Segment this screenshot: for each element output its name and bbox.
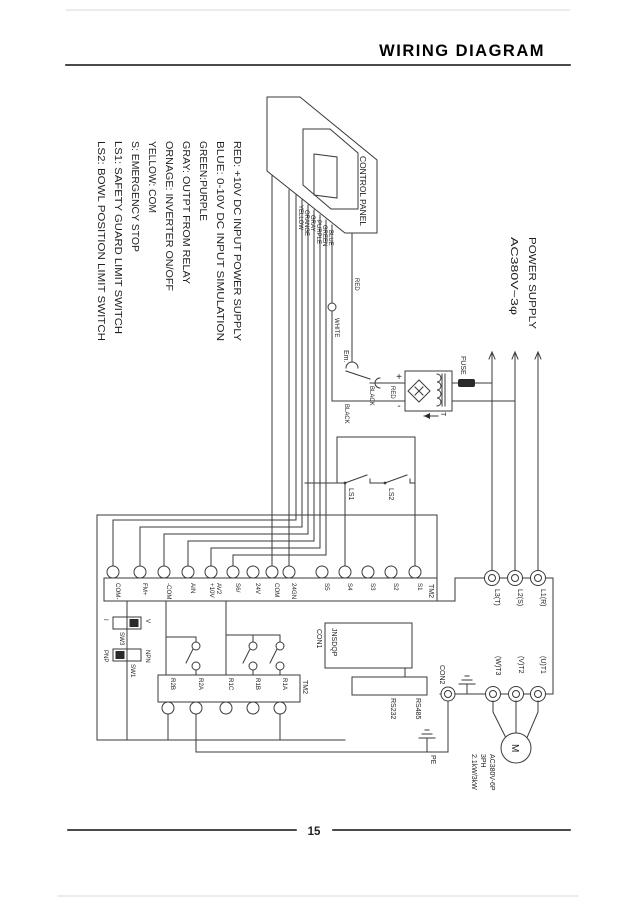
relay-output-wires — [168, 701, 448, 752]
input-terminals: L3(T) L2(S) L1(R) — [485, 571, 547, 607]
relay-contact — [192, 642, 200, 650]
tm2-bottom-name: TM2 — [301, 680, 308, 694]
page-title: WIRING DIAGRAM — [379, 42, 545, 60]
terminal-label: 24V — [254, 583, 261, 595]
em-switch-cap-icon — [346, 362, 358, 368]
terminal-circle — [385, 566, 397, 578]
ls2-label: LS2 — [387, 488, 394, 501]
sw3-slider-icon — [130, 619, 139, 627]
tm2-top-name: TM2 — [427, 584, 434, 598]
bridge-rectifier-icon — [408, 380, 430, 402]
terminal-label: -COM — [165, 583, 172, 600]
sw3-left-label: I — [102, 619, 108, 621]
wire-label-purple: PURPLE — [315, 220, 321, 244]
transformer-arrow-head — [424, 413, 430, 419]
wire-label-white: WHITE — [333, 318, 339, 337]
terminal-circle — [266, 566, 278, 578]
ring-terminal — [486, 687, 501, 702]
relay-contact — [192, 662, 200, 670]
terminal-circle — [227, 566, 239, 578]
transformer-coil-icon — [437, 374, 445, 406]
output-terminals: (W)T3 (V)T2 (U)T1 — [486, 656, 547, 702]
motor-spec: AC380V-6P 3PH 2.1kW/3kW — [470, 754, 495, 791]
terminal-circle — [339, 566, 351, 578]
relay-contact-lines — [166, 601, 280, 675]
ring-terminal — [508, 571, 523, 586]
sw1-label: SW1 — [129, 664, 136, 678]
legend-line-red: RED: +10V DC INPUT POWER SUPPLY — [231, 141, 242, 341]
legend-line-gray: GRAY: OUTPT FROM RELAY — [180, 141, 191, 284]
pe-ground-icon — [419, 730, 435, 752]
legend-line-yellow: YELLOW: COM — [146, 141, 157, 213]
terminal-label: COM- — [114, 583, 121, 600]
output-terminal-label: (U)T1 — [539, 656, 546, 674]
fuse-label: FUSE — [459, 356, 466, 375]
relay-contact — [249, 642, 257, 650]
con1-label: CON1 — [315, 629, 322, 649]
input-terminal-label: L3(T) — [493, 589, 500, 606]
input-terminal-label: L2(S) — [516, 589, 523, 606]
fuse-icon — [458, 379, 475, 387]
terminal-label: S4 — [346, 583, 353, 591]
ring-terminal — [531, 687, 546, 702]
contact-dot — [384, 482, 387, 485]
motor-spec-line: AC380V-6P — [488, 754, 495, 791]
con1-board-label: JNSDQP — [330, 628, 337, 657]
rs-port-box — [352, 677, 427, 695]
rs485-label: RS485 — [414, 698, 421, 720]
terminal-circle — [162, 702, 174, 714]
terminal-circle — [274, 702, 286, 714]
motor-spec-line: 3PH — [479, 754, 486, 768]
minus-sign: - — [397, 401, 400, 412]
tm2-top-circles — [107, 566, 421, 578]
earth-ground-icon — [459, 676, 475, 694]
wire-label-red-b: RED — [389, 386, 395, 399]
terminal-circle — [158, 566, 170, 578]
legend-line-ls1: LS1: SAFETY GUARD LIMIT SWITCH — [112, 141, 123, 334]
power-supply-voltage: AC380V~3φ — [508, 237, 519, 316]
terminal-circle — [409, 566, 421, 578]
ring-terminal — [485, 571, 500, 586]
wire-label-orange: ORANGE — [303, 210, 309, 236]
terminal-circle — [220, 702, 232, 714]
rs232-label: RS232 — [389, 698, 396, 720]
pe-label: PE — [429, 755, 436, 765]
relay-terminal-label: R2B — [169, 678, 176, 690]
tm2-bottom-circles — [162, 702, 286, 714]
motor-spec-line: 2.1kW/3kW — [470, 754, 477, 790]
connector-plug-icon — [328, 303, 336, 311]
tm2-top-labels: COM- FM+ -COM AIN AV2 +10V S6/ 24V COM 2… — [114, 583, 434, 600]
terminal-label: 24GN — [290, 583, 297, 599]
terminal-circle — [190, 702, 202, 714]
terminal-circle — [107, 566, 119, 578]
relay-terminal-label: R2A — [197, 678, 204, 691]
control-panel-label: CONTROL PANEL — [358, 156, 368, 226]
motor-symbol: M — [509, 744, 520, 752]
relay-terminal-label: R1C — [227, 678, 234, 691]
terminal-label: S5 — [323, 583, 330, 591]
supply-phase-lines — [492, 352, 538, 570]
terminal-label: COM — [273, 583, 280, 597]
tm2-top-strip — [104, 578, 437, 601]
terminal-circle — [247, 566, 259, 578]
plus-sign: + — [396, 372, 402, 383]
tm2-bottom-labels: R2B R2A R1C R1B R1A TM2 — [169, 678, 308, 694]
wiring-diagram-page: WIRING DIAGRAM 15 RED: +10V DC INPUT POW… — [0, 0, 638, 903]
terminal-label: S6/ — [234, 583, 241, 593]
terminal-label: S2 — [392, 583, 399, 591]
legend-line-ls2: LS2: BOWL POSITION LIMIT SWITCH — [95, 141, 106, 341]
terminal-label-av2-line2: +10V — [208, 583, 215, 598]
terminal-circle — [283, 566, 295, 578]
input-terminal-label: L1(R) — [539, 589, 546, 607]
terminal-circle — [134, 566, 146, 578]
output-terminal-label: (W)T3 — [494, 656, 501, 676]
terminal-circle — [362, 566, 374, 578]
relay-contact — [276, 662, 284, 670]
wire-label-red: RED — [353, 278, 359, 291]
terminal-label: AIN — [189, 583, 196, 593]
terminal-circle — [205, 566, 217, 578]
power-supply-label: POWER SUPPLY — [526, 237, 537, 329]
relay-contact — [276, 642, 284, 650]
terminal-label: AV2 — [215, 583, 222, 595]
em-switch-label: Em. — [342, 350, 349, 363]
terminal-label: FM+ — [141, 583, 148, 596]
legend-line-green: GREEN:PURPLE — [197, 141, 208, 221]
sw1-slider-icon — [116, 651, 125, 659]
transformer-label: T — [439, 412, 446, 417]
sw3-label: SW3 — [118, 632, 125, 646]
wire-label-green: GREEN — [321, 225, 327, 246]
contact-dot — [344, 482, 347, 485]
page-number: 15 — [308, 826, 321, 838]
sw1-right-label: NPN — [144, 650, 150, 663]
legend-line-s: S: EMERGENCY STOP — [129, 141, 140, 252]
output-terminal-label: (V)T2 — [517, 656, 524, 674]
wire-label-gray: GRAY — [309, 215, 315, 232]
ring-terminal — [531, 571, 546, 586]
ls1-label: LS1 — [347, 488, 354, 501]
legend-line-blue: BLUE: 0-10V DC INPUT SIMULATION — [214, 141, 225, 341]
wire-label-black-a: BLACK — [368, 386, 374, 406]
sw3-right-label: V — [144, 619, 150, 623]
con2-label: CON2 — [438, 665, 445, 685]
ring-terminal — [509, 687, 524, 702]
relay-contact — [249, 662, 257, 670]
terminal-circle — [247, 702, 259, 714]
legend-line-orange: ORNAGE: INVERTER ON/OFF — [163, 141, 174, 291]
legend-block: RED: +10V DC INPUT POWER SUPPLY BLUE: 0-… — [95, 141, 242, 341]
white-red-wires — [332, 225, 405, 401]
con1-board-box — [325, 623, 412, 668]
terminal-label: S3 — [369, 583, 376, 591]
sw1-left-label: PNP — [102, 650, 108, 662]
wire-label-black-b: BLACK — [343, 404, 349, 424]
terminal-circle — [182, 566, 194, 578]
control-panel-screen — [314, 154, 337, 198]
relay-terminal-label: R1A — [281, 678, 288, 691]
relay-terminal-label: R1B — [254, 678, 261, 690]
terminal-label: S1 — [416, 583, 423, 591]
terminal-circle — [316, 566, 328, 578]
wire-label-yellow: YELLOW — [297, 205, 303, 230]
con2-terminal — [441, 687, 455, 701]
relay-contact-circles — [192, 642, 284, 670]
limit-switch-loop — [305, 437, 415, 566]
